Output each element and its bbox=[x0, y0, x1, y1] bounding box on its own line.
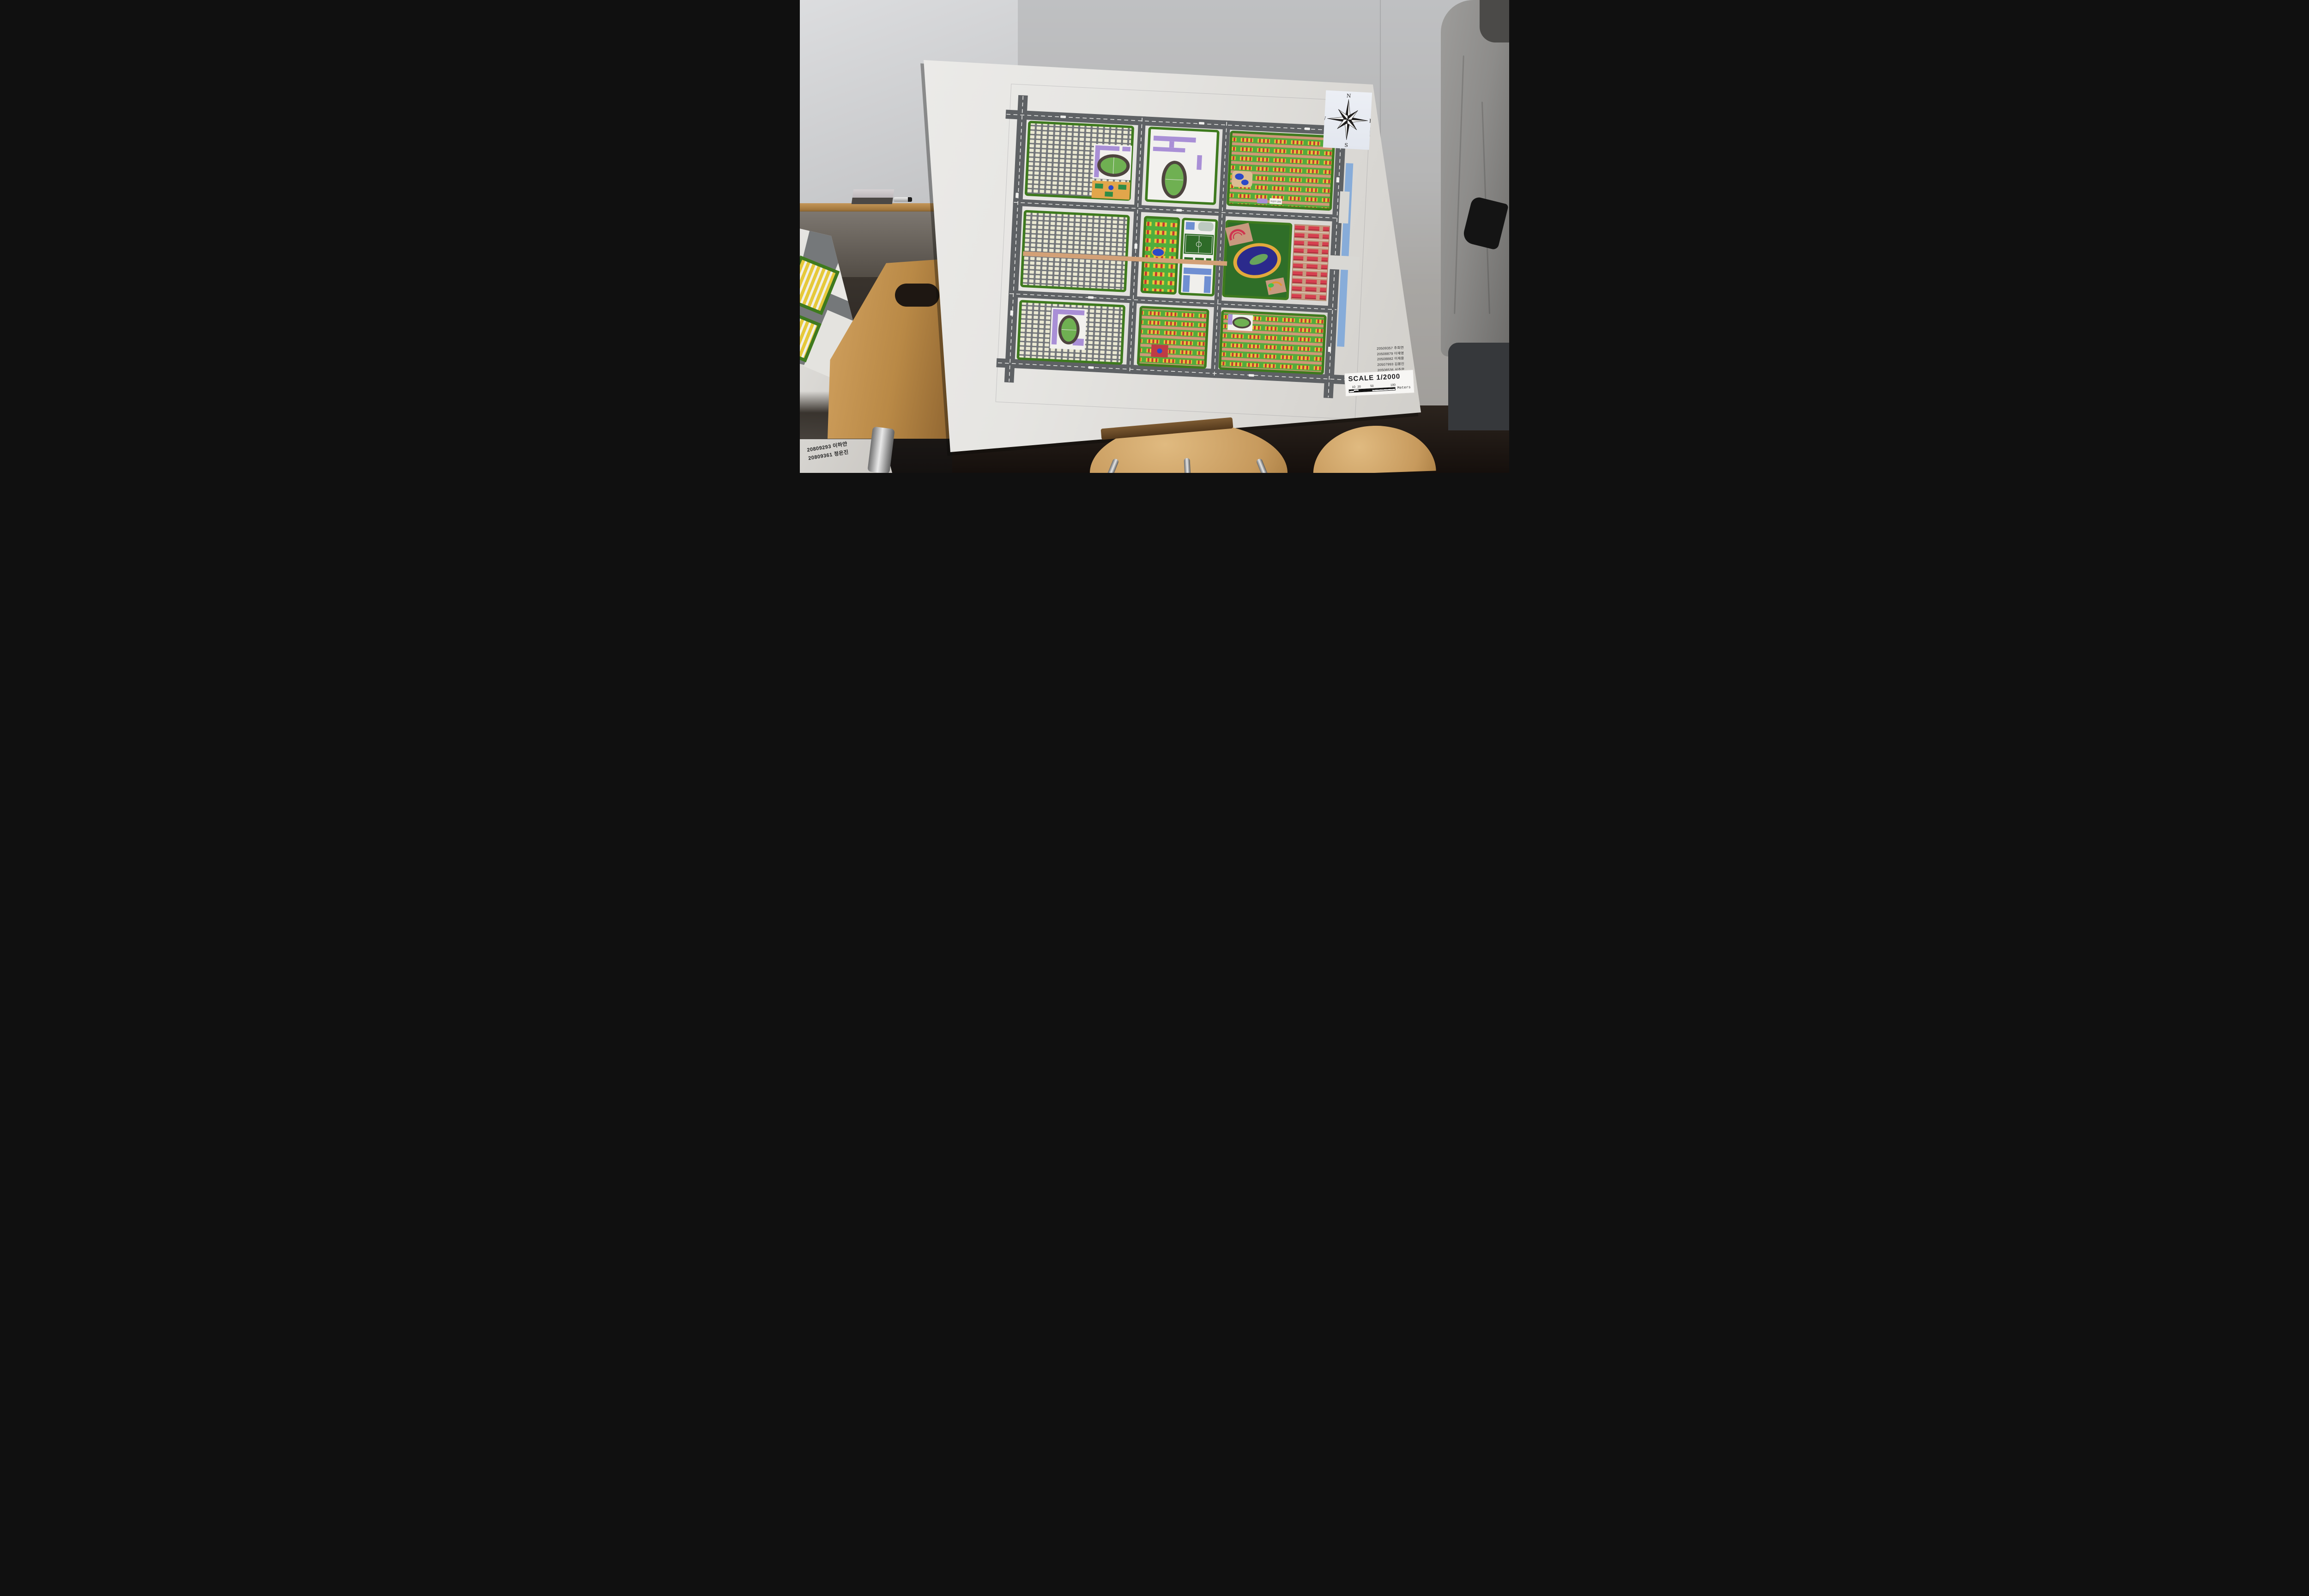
scale-bar: 10 20 50 100 bbox=[1349, 387, 1396, 393]
scale-segment bbox=[1349, 390, 1354, 393]
car bbox=[1199, 122, 1204, 125]
scale-tick: 10 bbox=[1352, 386, 1356, 389]
car bbox=[1010, 310, 1013, 316]
car bbox=[1060, 115, 1066, 118]
car bbox=[1088, 296, 1094, 299]
block-red-district bbox=[1291, 224, 1330, 301]
school-se-building bbox=[1228, 314, 1233, 325]
scale-bar-row: 10 20 50 100 Meters bbox=[1349, 385, 1411, 393]
purple-building-ne bbox=[1257, 198, 1268, 204]
compass-label-s: S bbox=[1344, 142, 1348, 148]
scale-tick: 20 bbox=[1357, 385, 1361, 388]
school-east-building bbox=[1169, 141, 1174, 148]
dome-building bbox=[1198, 222, 1214, 231]
car bbox=[1134, 243, 1137, 249]
car bbox=[1305, 127, 1310, 130]
whiteboard-eraser bbox=[852, 189, 894, 204]
block-housing-w bbox=[1022, 211, 1129, 291]
car bbox=[1336, 177, 1340, 183]
site-plan-model: 어린이 공원 bbox=[992, 88, 1371, 411]
scale-segment bbox=[1372, 387, 1395, 391]
blue-building bbox=[1185, 222, 1195, 230]
coat-fold bbox=[1454, 55, 1464, 314]
pond-playground-center bbox=[1152, 248, 1165, 257]
photo-scene: 20809293 이하얀20809361 정은진 bbox=[800, 0, 1509, 473]
playground-ne bbox=[1232, 171, 1253, 188]
canal-structure bbox=[1329, 255, 1360, 271]
blue-complex bbox=[1204, 276, 1211, 293]
side-model-housing bbox=[800, 255, 840, 315]
school-east-building bbox=[1197, 155, 1202, 170]
gloved-hand bbox=[1462, 196, 1509, 250]
coat-collar bbox=[1480, 0, 1509, 42]
trousers bbox=[1448, 343, 1509, 430]
scale-tick: 50 bbox=[1370, 385, 1374, 388]
scale-unit: Meters bbox=[1397, 385, 1411, 390]
compass-rose: NESW bbox=[1323, 90, 1372, 150]
site-plan-map: 어린이 공원 bbox=[992, 88, 1371, 411]
scale-segment bbox=[1354, 389, 1359, 392]
car bbox=[1328, 347, 1331, 352]
compass-svg: NESW bbox=[1323, 90, 1372, 150]
car bbox=[1088, 366, 1094, 369]
scale-segment bbox=[1358, 389, 1372, 392]
scale-box: SCALE 1/2000 10 20 50 100 Meters bbox=[1344, 369, 1414, 397]
blue-complex bbox=[1183, 275, 1190, 292]
car bbox=[1015, 193, 1019, 198]
wooden-stool-right bbox=[1312, 423, 1436, 473]
whiteboard-marker bbox=[894, 197, 912, 202]
block-terrace-s bbox=[1138, 307, 1208, 368]
car bbox=[1249, 374, 1254, 377]
block-terrace-ne bbox=[1228, 132, 1334, 209]
court bbox=[1118, 185, 1126, 190]
canal-structure bbox=[1339, 191, 1350, 224]
scale-tick: 100 bbox=[1390, 383, 1396, 387]
board-credits: 20509357 추희연20508879 이재영20508882 이재용2050… bbox=[1377, 345, 1411, 373]
eraser-top bbox=[852, 189, 894, 198]
compass-label-n: N bbox=[1347, 93, 1352, 99]
stool-seat bbox=[1312, 423, 1436, 473]
person-standing bbox=[1441, 0, 1509, 473]
court bbox=[1105, 192, 1113, 197]
compass-label-e: E bbox=[1369, 118, 1372, 124]
eraser-felt bbox=[852, 198, 893, 204]
court bbox=[1095, 183, 1103, 188]
chair-handle-cutout bbox=[895, 284, 939, 307]
car bbox=[1176, 209, 1182, 212]
scale-label: SCALE 1/2000 bbox=[1348, 372, 1410, 383]
trench-coat bbox=[1441, 0, 1509, 357]
school-west-building bbox=[1122, 146, 1130, 151]
school-se-field bbox=[1233, 317, 1250, 328]
marker-cap bbox=[908, 197, 912, 202]
